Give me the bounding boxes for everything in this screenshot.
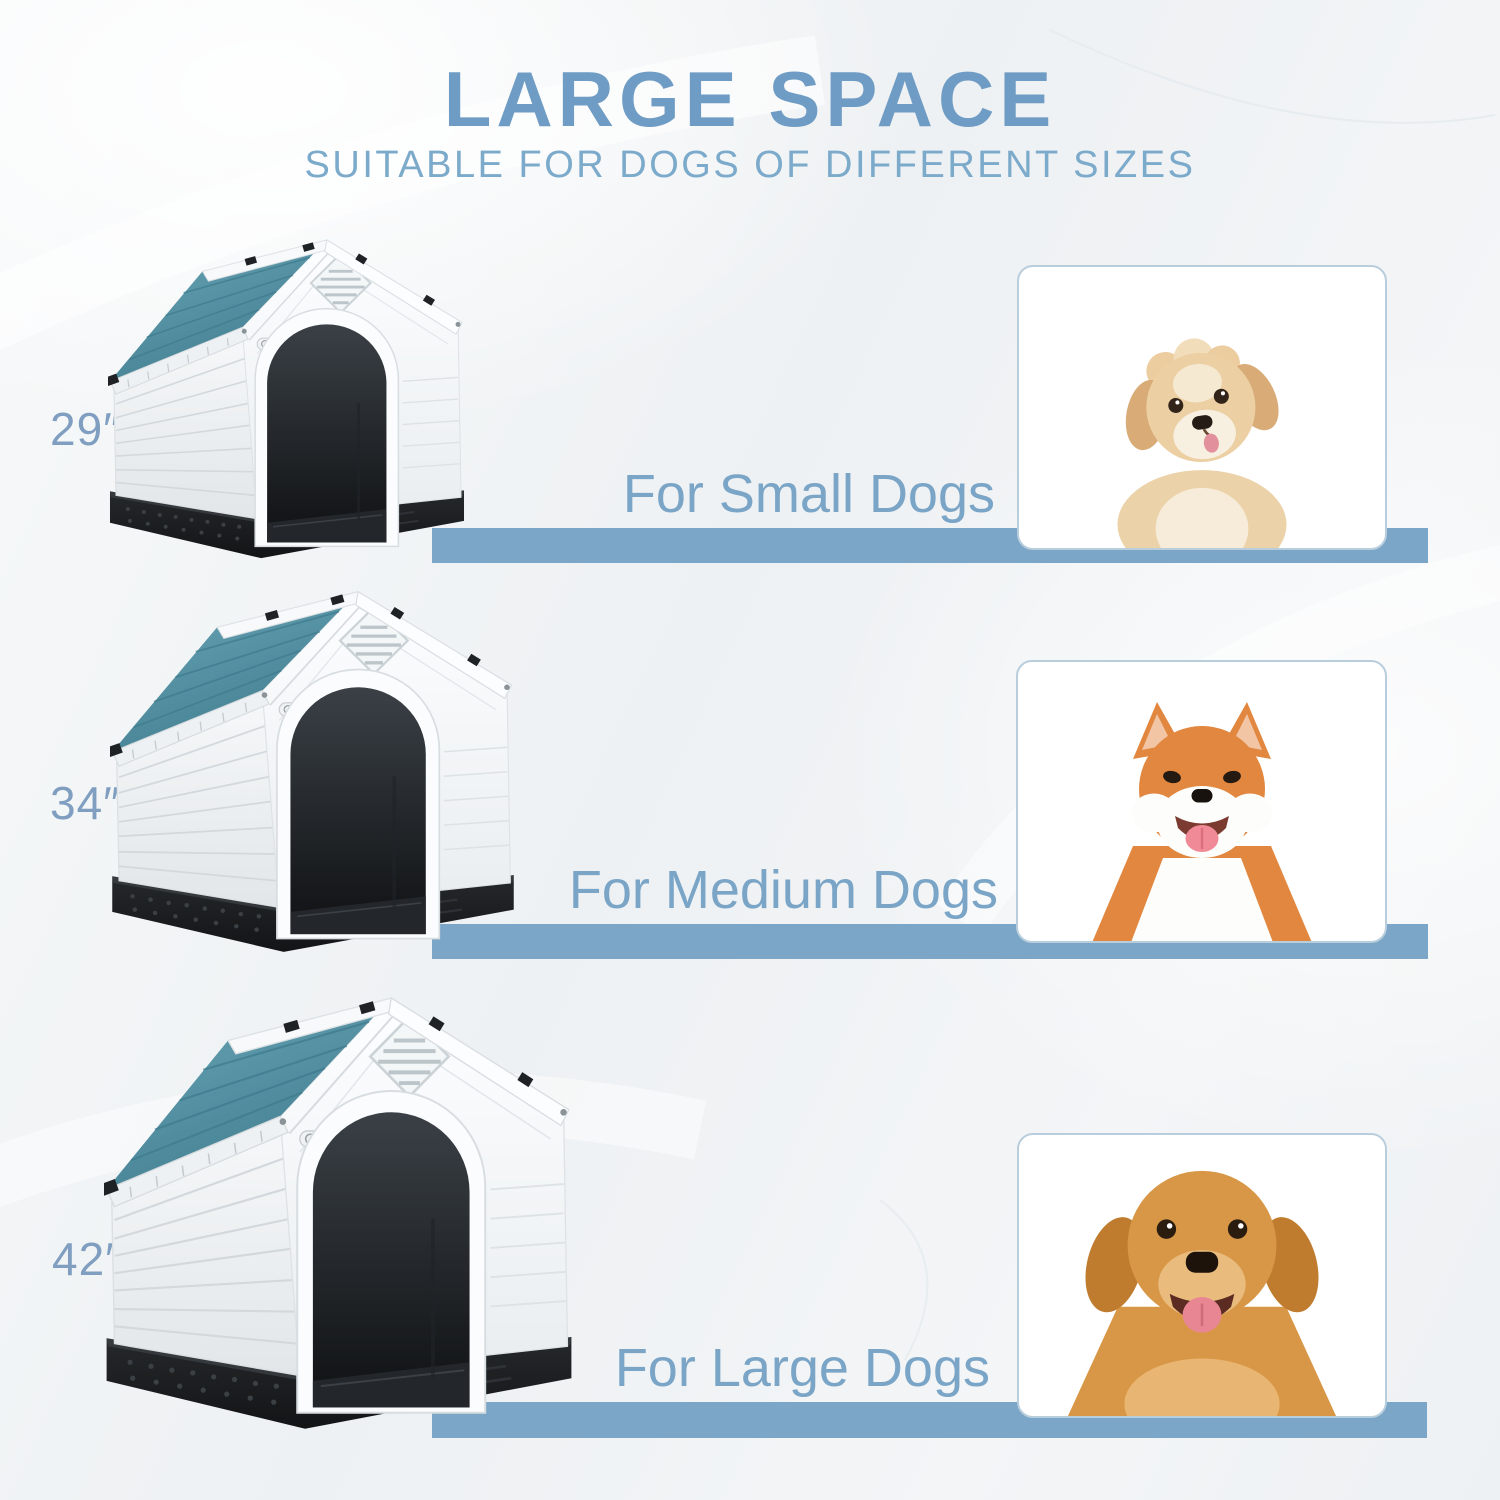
dog-photo-frame-small	[1017, 265, 1387, 550]
product-infographic: LARGE SPACE SUITABLE FOR DOGS OF DIFFERE…	[0, 0, 1500, 1500]
doghouse-29-inch-icon	[108, 234, 466, 568]
page-title: LARGE SPACE	[0, 60, 1500, 138]
caption-medium-dogs: For Medium Dogs	[458, 858, 998, 923]
dog-photo-frame-large	[1017, 1133, 1387, 1418]
large-dog-photo-icon	[1024, 1145, 1380, 1418]
caption-small-dogs: For Small Dogs	[495, 462, 995, 527]
small-dog-photo-icon	[1052, 320, 1352, 550]
dog-photo-frame-medium	[1016, 660, 1387, 943]
doghouse-34-inch-icon	[110, 585, 516, 963]
medium-dog-photo-icon	[1037, 690, 1367, 943]
doghouse-42-inch-icon	[104, 990, 574, 1442]
page-subtitle: SUITABLE FOR DOGS OF DIFFERENT SIZES	[0, 146, 1500, 184]
